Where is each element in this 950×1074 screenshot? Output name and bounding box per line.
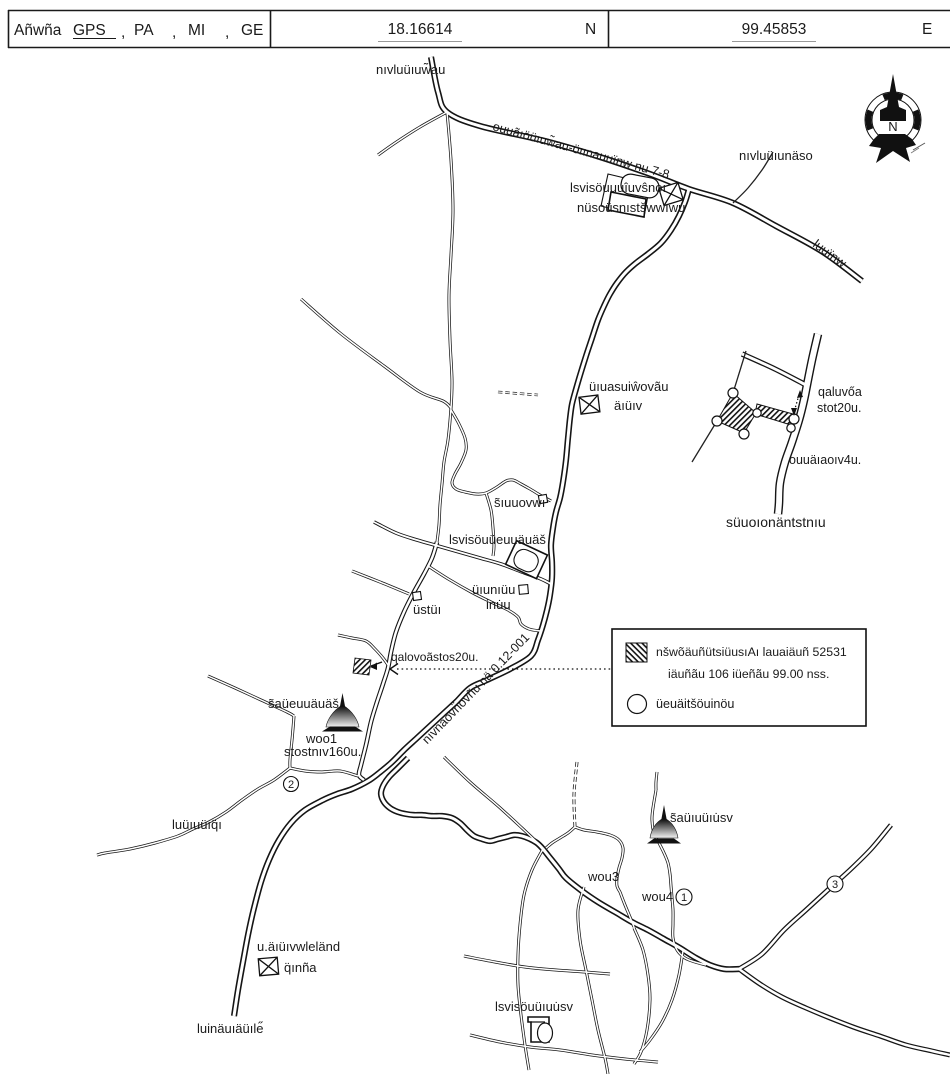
svg-text:E: E [922, 21, 932, 38]
svg-text:iäuñãu 106 iüeñãu 99.00 nss.: iäuñãu 106 iüeñãu 99.00 nss. [668, 667, 829, 681]
svg-text:wou3: wou3 [587, 869, 619, 884]
svg-text:üeuäitšöuinöu: üeuäitšöuinöu [656, 697, 734, 711]
svg-text:luüıuüıq̈ı: luüıuüıq̈ı [172, 817, 222, 832]
svg-text:nüsoüsnıstšwwıwu: nüsoüsnıstšwwıwu [577, 200, 685, 215]
svg-text:qaluvőa: qaluvőa [818, 385, 862, 399]
svg-text:PA: PA [134, 22, 154, 39]
svg-text:N: N [888, 119, 897, 134]
svg-text:s̃aüeuuäuäš: s̃aüeuuäuäš [268, 696, 339, 711]
svg-text:luinäuıäüıle̋: luinäuıäüıle̋ [197, 1021, 264, 1036]
svg-text:GPS: GPS [73, 22, 106, 39]
svg-text:nıvluüıuw̃au: nıvluüıuw̃au [376, 62, 445, 77]
svg-text:GE: GE [241, 22, 263, 39]
svg-text:nıvluüıunäso: nıvluüıunäso [739, 148, 813, 163]
svg-text:MI: MI [188, 22, 205, 39]
svg-text:stostnıv160u.: stostnıv160u. [284, 744, 361, 759]
svg-text:inu̇u: inu̇u [486, 597, 511, 612]
svg-text:üstüı: üstüı [413, 602, 441, 617]
svg-text:lsvisöuüeuuäuäš: lsvisöuüeuuäuäš [449, 532, 546, 547]
svg-text:wou4: wou4 [641, 889, 673, 904]
svg-text:üıuasuiŵovãu: üıuasuiŵovãu [589, 379, 669, 394]
svg-text:,: , [172, 24, 176, 41]
svg-text:,: , [121, 24, 125, 41]
svg-text:N: N [585, 21, 596, 38]
svg-text:stot20u.: stot20u. [817, 401, 861, 415]
svg-text:2: 2 [288, 779, 294, 791]
svg-text:süuoıonäntstnıu: süuoıonäntstnıu [726, 514, 826, 530]
svg-text:18.16614: 18.16614 [388, 21, 453, 38]
svg-text:3: 3 [832, 879, 838, 891]
svg-text:qalovoãstos20u.: qalovoãstos20u. [391, 650, 478, 664]
svg-text:99.45853: 99.45853 [742, 21, 807, 38]
svg-text:Añwña: Añwña [14, 22, 62, 39]
svg-text:1: 1 [681, 892, 687, 904]
svg-text:äıüıv: äıüıv [614, 398, 643, 413]
svg-text:q̈ınña: q̈ınña [284, 960, 317, 975]
svg-text:lsvisöuuuîuvŝnoı: lsvisöuuuîuvŝnoı [570, 180, 666, 195]
svg-text:,: , [225, 24, 229, 41]
svg-text:nšwõäuñütsiüusıAı lauaiäuñ 525: nšwõäuñütsiüusıAı lauaiäuñ 52531 [656, 645, 847, 659]
svg-text:lsvisöuüıuu̇sv: lsvisöuüıuu̇sv [495, 999, 574, 1014]
svg-text:üıunıüu: üıunıüu [472, 582, 515, 597]
svg-text:ouuäıaoıv4u.: ouuäıaoıv4u. [789, 453, 861, 467]
svg-text:s̃ıuuovwı: s̃ıuuovwı [494, 495, 545, 510]
svg-text:s̃aüıuüıu̇sv: s̃aüıuüıu̇sv [670, 810, 733, 825]
svg-text:u.äıüıvwleländ: u.äıüıvwleländ [257, 939, 340, 954]
